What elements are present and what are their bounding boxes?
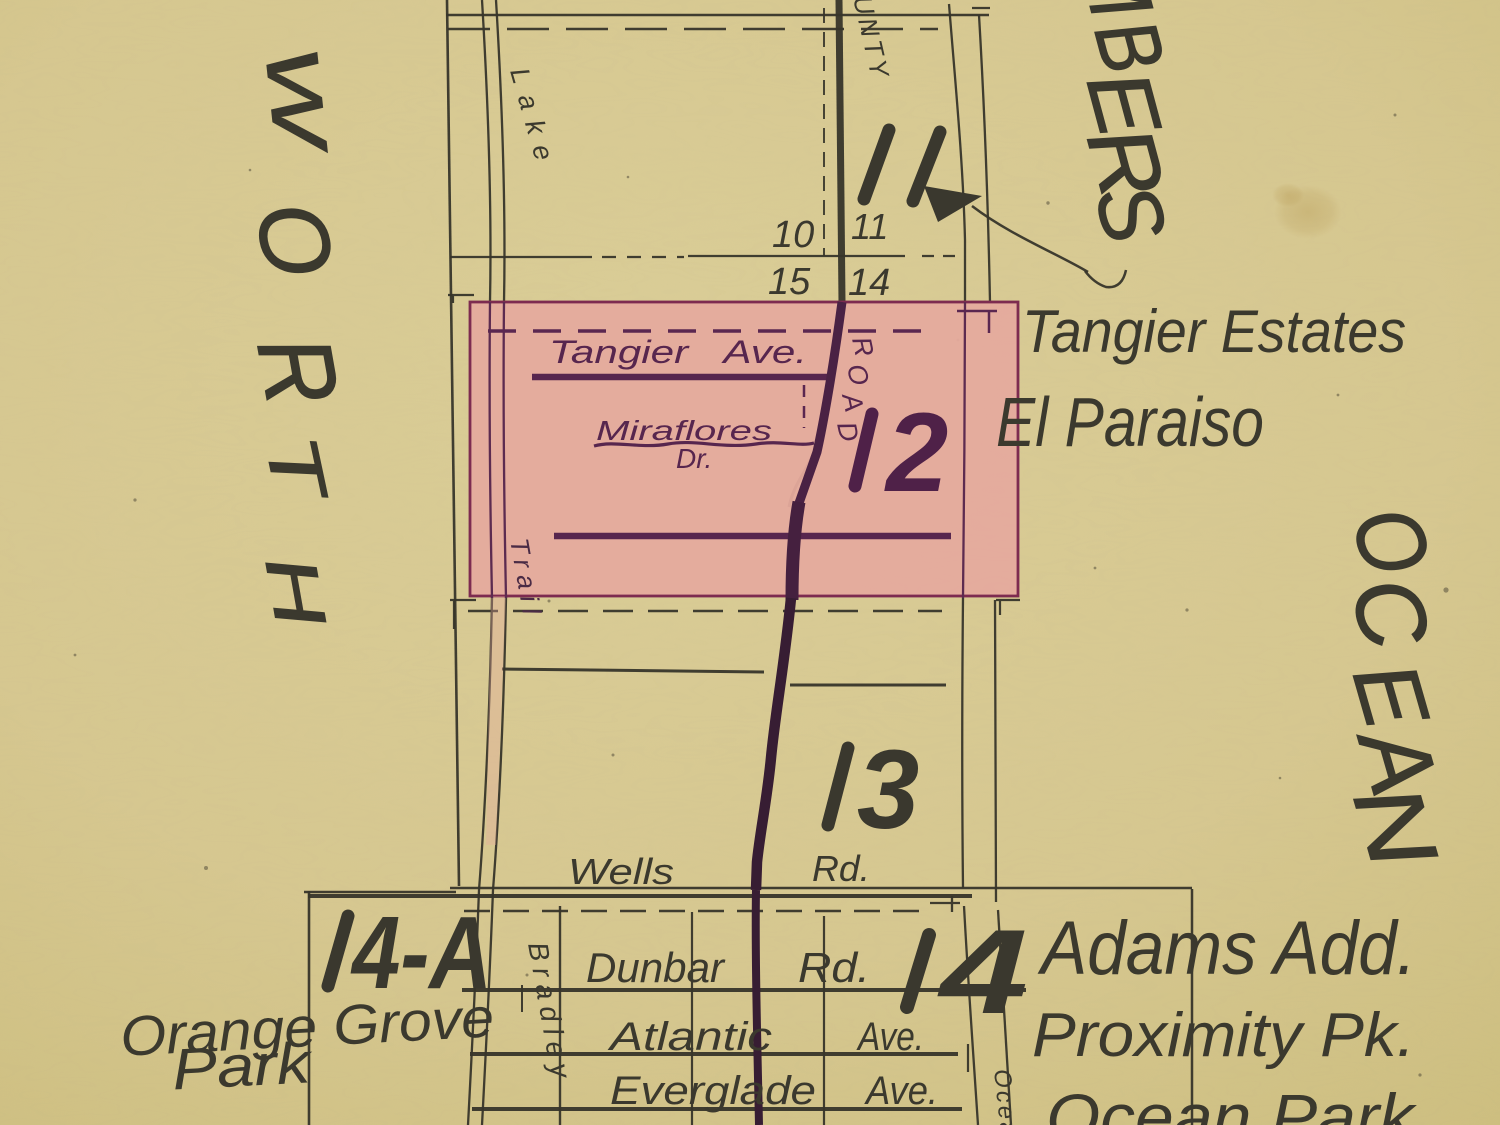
svg-text:Park: Park xyxy=(170,1030,315,1102)
svg-text:Ave.: Ave. xyxy=(856,1015,924,1059)
svg-text:Dr.: Dr. xyxy=(676,443,712,474)
svg-text:El Paraiso: El Paraiso xyxy=(996,383,1264,461)
svg-text:Adams Add.: Adams Add. xyxy=(1037,906,1416,991)
svg-text:Wells: Wells xyxy=(568,851,674,892)
svg-text:W: W xyxy=(249,42,342,159)
svg-text:Rd.: Rd. xyxy=(812,848,870,889)
svg-text:3: 3 xyxy=(857,727,919,852)
svg-text:Dunbar: Dunbar xyxy=(586,944,726,991)
svg-text:Rd.: Rd. xyxy=(798,944,870,991)
svg-text:Everglade: Everglade xyxy=(610,1069,816,1113)
svg-text:H: H xyxy=(250,549,340,633)
svg-text:Proximity Pk.: Proximity Pk. xyxy=(1032,1001,1415,1070)
svg-text:10: 10 xyxy=(772,214,814,256)
svg-text:14: 14 xyxy=(848,262,890,304)
svg-text:2: 2 xyxy=(884,390,948,515)
svg-text:Ocean Park: Ocean Park xyxy=(1046,1080,1417,1125)
svg-text:11: 11 xyxy=(851,206,888,247)
svg-text:Ave.: Ave. xyxy=(864,1069,938,1113)
svg-text:Miraflores: Miraflores xyxy=(596,415,772,446)
svg-text:Tangier Estates: Tangier Estates xyxy=(1022,298,1406,365)
svg-text:15: 15 xyxy=(768,261,811,303)
svg-text:4: 4 xyxy=(937,905,1028,1039)
svg-text:Tangier Ave.: Tangier Ave. xyxy=(549,334,807,370)
svg-text:Atlantic: Atlantic xyxy=(608,1015,772,1059)
